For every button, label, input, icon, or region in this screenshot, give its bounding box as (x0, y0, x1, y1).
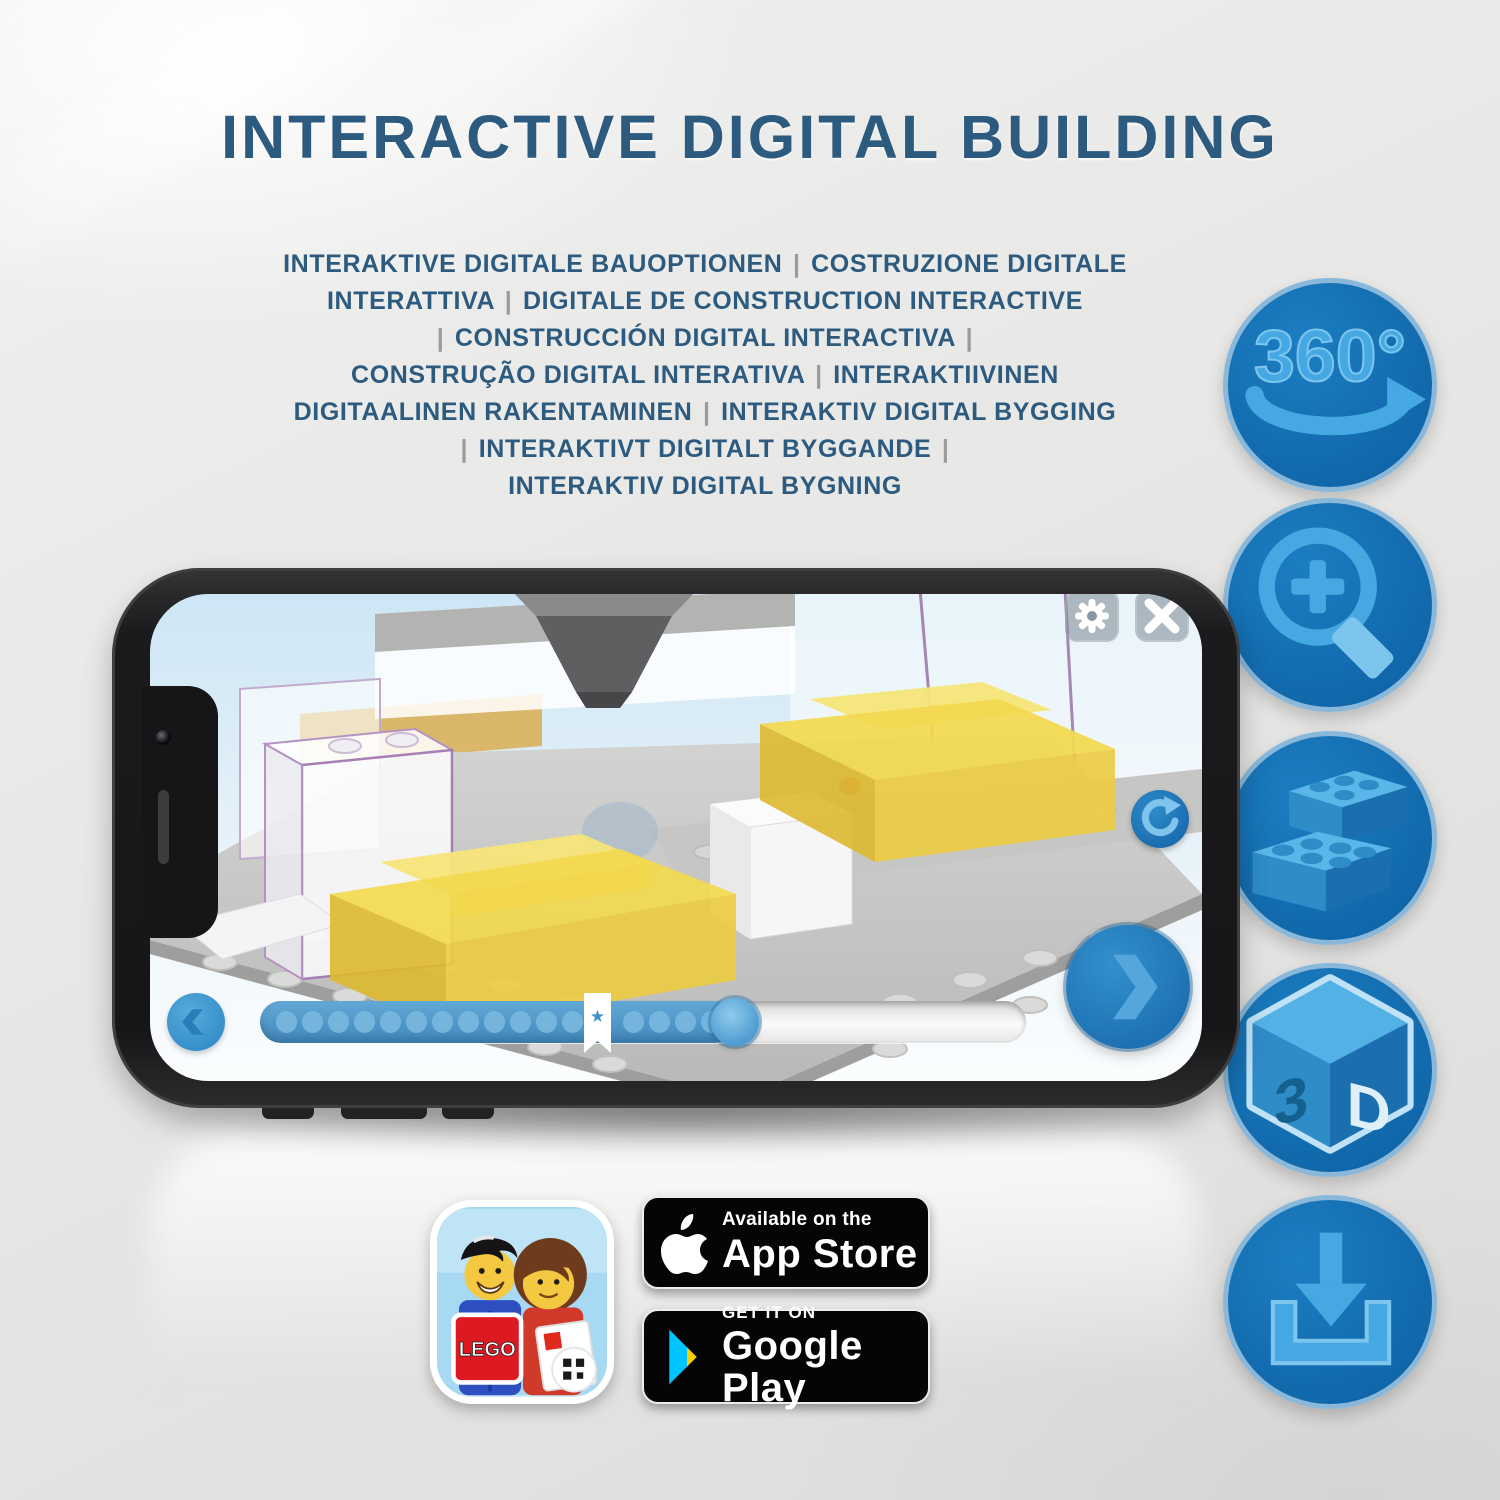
progress-dot (380, 1011, 401, 1033)
progress-dot (458, 1011, 479, 1033)
progress-dot (354, 1011, 375, 1033)
subtitle-block: INTERAKTIVE DIGITALE BAUOPTIONEN | COSTR… (170, 246, 1240, 505)
subtitle-line: INTERAKTIV DIGITAL BYGNING (170, 468, 1240, 505)
feature-zoom (1223, 498, 1437, 712)
feature-bricks (1223, 731, 1437, 945)
step-progress-bar[interactable]: ★ (260, 1001, 1026, 1043)
feature-download (1223, 1195, 1437, 1409)
download-icon (1228, 1200, 1432, 1404)
3d-cube-icon: 3 D (1228, 968, 1432, 1172)
svg-text:3: 3 (1274, 1063, 1308, 1139)
chevron-right-icon (1066, 925, 1190, 1049)
feature-360-rotation: 360° (1223, 278, 1437, 492)
progress-dot (536, 1011, 557, 1033)
subtitle-line: INTERAKTIVE DIGITALE BAUOPTIONEN | COSTR… (170, 246, 1240, 283)
settings-button[interactable] (1065, 594, 1119, 642)
progress-dot (562, 1011, 583, 1033)
next-step-button[interactable] (1066, 925, 1190, 1049)
progress-dot (484, 1011, 505, 1033)
rotate-reset-button[interactable] (1131, 790, 1189, 848)
chevron-left-icon (167, 993, 225, 1051)
phone-reflection (150, 1135, 1200, 1465)
lego-app-icon[interactable]: LEGO (430, 1200, 614, 1404)
360-rotation-icon: 360° (1228, 283, 1432, 487)
badge-line2: Google Play (722, 1325, 918, 1409)
progress-dot (302, 1011, 323, 1033)
badge-line1: GET IT ON (722, 1304, 918, 1322)
badge-line1: Available on the (722, 1210, 918, 1230)
app-store-badge[interactable]: Available on the App Store (642, 1196, 930, 1289)
progress-dot (510, 1011, 531, 1033)
subtitle-line: | CONSTRUCCIÓN DIGITAL INTERACTIVA | (170, 320, 1240, 357)
svg-text:LEGO: LEGO (459, 1339, 516, 1361)
poster: INTERACTIVE DIGITAL BUILDING INTERAKTIVE… (0, 0, 1500, 1500)
badge-line2: App Store (722, 1233, 918, 1275)
power-button (442, 1108, 494, 1119)
volume-button (262, 1108, 314, 1119)
star-icon: ★ (590, 1007, 605, 1027)
svg-text:D: D (1347, 1070, 1391, 1149)
previous-step-button[interactable] (167, 993, 225, 1051)
speaker-slit (158, 790, 169, 864)
progress-dot (432, 1011, 453, 1033)
app-screen: ★ (150, 594, 1202, 1081)
google-play-icon (644, 1324, 722, 1390)
lego-bricks-icon (1228, 736, 1432, 940)
svg-text:360°: 360° (1254, 315, 1406, 397)
subtitle-line: CONSTRUÇÃO DIGITAL INTERATIVA | INTERAKT… (170, 357, 1240, 394)
lego-app-artwork: LEGO (437, 1207, 607, 1397)
progress-dot (623, 1011, 644, 1033)
subtitle-line: DIGITAALINEN RAKENTAMINEN | INTERAKTIV D… (170, 394, 1240, 431)
subtitle-line: | INTERAKTIVT DIGITALT BYGGANDE | (170, 431, 1240, 468)
phone-notch (142, 686, 218, 938)
progress-dot (328, 1011, 349, 1033)
gear-icon (1065, 594, 1119, 642)
progress-handle[interactable] (711, 998, 759, 1046)
progress-dot (649, 1011, 670, 1033)
volume-button (341, 1108, 427, 1119)
rotate-icon (1131, 790, 1189, 848)
progress-dot (675, 1011, 696, 1033)
close-icon (1135, 594, 1189, 642)
zoom-in-icon (1228, 503, 1432, 707)
apple-logo-icon (644, 1212, 722, 1274)
progress-dot (276, 1011, 297, 1033)
google-play-badge[interactable]: GET IT ON Google Play (642, 1309, 930, 1404)
camera-icon (156, 730, 171, 745)
progress-dot (406, 1011, 427, 1033)
feature-3d-view: 3 D (1223, 963, 1437, 1177)
close-button[interactable] (1135, 594, 1189, 642)
page-title: INTERACTIVE DIGITAL BUILDING (0, 102, 1500, 172)
phone-mockup: ★ (112, 568, 1240, 1108)
subtitle-line: INTERATTIVA | DIGITALE DE CONSTRUCTION I… (170, 283, 1240, 320)
